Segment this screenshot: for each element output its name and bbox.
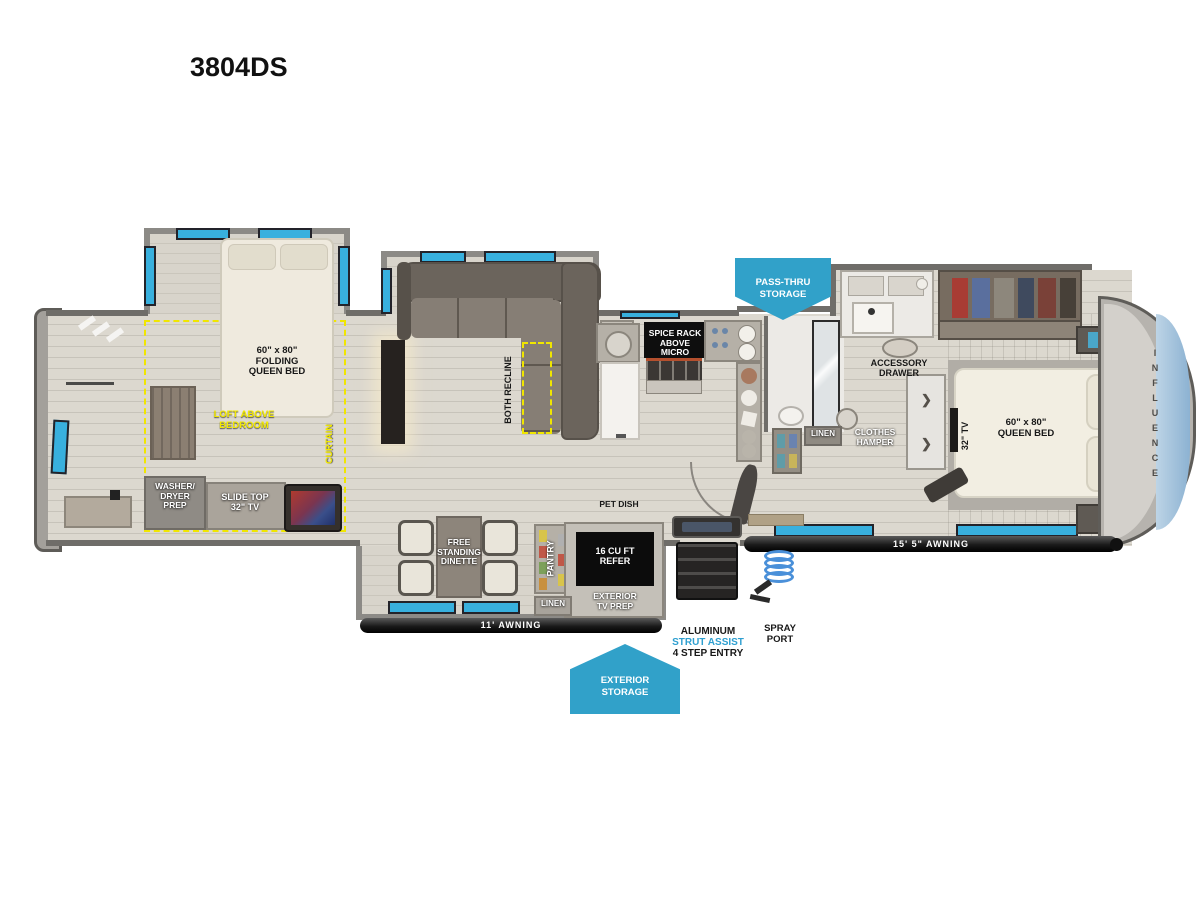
ent-center-label xyxy=(396,347,420,437)
kitchen-linen-label: LINEN xyxy=(534,600,572,609)
dinette-chair xyxy=(482,520,518,556)
entry-line3: 4 STEP ENTRY xyxy=(656,648,760,659)
bedroom-tv-label: 32" TV xyxy=(960,414,972,458)
stove xyxy=(646,358,702,380)
entry-steps xyxy=(676,542,738,600)
sofa-armrest xyxy=(397,262,411,340)
spice-rack-label: SPICE RACK ABOVE MICRO xyxy=(645,329,705,358)
window xyxy=(338,246,350,306)
queen-bed-label: 60" x 80" QUEEN BED xyxy=(984,418,1068,439)
kitchen-island xyxy=(600,362,640,440)
kitchen-counter-strip xyxy=(736,362,762,462)
wall-top-2 xyxy=(346,310,386,316)
entry-threshold xyxy=(748,514,804,526)
wall-top-1 xyxy=(46,310,148,316)
awning-small: 11' AWNING xyxy=(360,618,662,633)
floorplan-canvas: 3804DS 60" x 80" FOLDING xyxy=(0,0,1200,900)
exterior-tv-label: EXTERIOR TV PREP xyxy=(578,592,652,611)
entry-line2: STRUT ASSIST xyxy=(656,637,760,648)
entry-doormat xyxy=(672,516,742,538)
spray-faucet-base-icon xyxy=(750,594,771,603)
both-recline-label: BOTH RECLINE xyxy=(503,345,515,435)
wall-bottom-1 xyxy=(46,540,360,546)
window xyxy=(51,420,70,475)
window xyxy=(144,246,156,306)
bath-linen-label: LINEN xyxy=(804,430,842,439)
window xyxy=(462,601,520,614)
chevron-right-icon: ❯ xyxy=(921,392,932,408)
spray-port-label: SPRAY PORT xyxy=(748,624,812,645)
exterior-storage-label: EXTERIOR STORAGE xyxy=(601,675,650,697)
slide-top-tv-label: SLIDE TOP 32" TV xyxy=(208,492,282,512)
awning-small-label: 11' AWNING xyxy=(481,620,542,630)
accessory-drawer-label: ACCESSORY DRAWER xyxy=(864,358,934,378)
window xyxy=(620,311,680,319)
bedroom-tv xyxy=(950,408,958,452)
pantry-label: PANTRY xyxy=(546,529,559,589)
awning-main-label: 15' 5" AWNING xyxy=(893,539,969,549)
kitchen-sink-unit xyxy=(596,323,640,363)
sofa-back-right xyxy=(561,262,599,440)
refer-label: 16 CU FT REFER xyxy=(578,546,652,566)
chevron-right-icon: ❯ xyxy=(921,436,932,452)
washer-dryer-label: WASHER/ DRYER PREP xyxy=(146,482,204,511)
loft-tv-cabinet xyxy=(284,484,342,532)
shower xyxy=(812,320,840,428)
clothes-hamper-label: CLOTHES HAMPER xyxy=(846,428,904,447)
awning-main: 15' 5" AWNING xyxy=(744,536,1118,552)
recline-outline xyxy=(522,342,552,434)
range-front xyxy=(646,380,702,394)
floorplan-title: 3804DS xyxy=(190,52,350,82)
windshield-band xyxy=(1156,314,1190,530)
vanity-stool xyxy=(882,338,918,358)
brand-name: INFLUENCE xyxy=(1138,348,1160,508)
vanity xyxy=(840,270,934,338)
entry-line1: ALUMINUM xyxy=(656,626,760,637)
dinette-chair xyxy=(398,560,434,596)
loft-above-label: LOFT ABOVE BEDROOM xyxy=(200,410,288,431)
entry-labels: ALUMINUM STRUT ASSIST 4 STEP ENTRY xyxy=(656,626,760,670)
window xyxy=(176,228,230,240)
kitchen-counter-right xyxy=(704,320,762,362)
folding-queen-bed-label: 60" x 80" FOLDING QUEEN BED xyxy=(226,346,328,378)
spray-coil-icon xyxy=(764,550,798,594)
foot-wardrobe: ❯ ❯ xyxy=(906,374,946,470)
pet-dish-label: PET DISH xyxy=(594,500,644,510)
dinette-label: FREE STANDING DINETTE xyxy=(432,538,486,567)
front-closet xyxy=(938,270,1082,340)
curtain-label: CURTAIN xyxy=(324,414,336,474)
window xyxy=(388,601,456,614)
dinette-chair xyxy=(398,520,434,556)
rear-desk xyxy=(64,496,132,528)
loft-wardrobe xyxy=(150,386,196,460)
awning-end-cap xyxy=(1110,538,1123,551)
folding-queen-bed xyxy=(220,238,334,418)
rear-shelf-line xyxy=(66,382,114,385)
toilet xyxy=(778,406,804,426)
rear-shelf-marks xyxy=(78,318,138,348)
dish-cabinet xyxy=(772,428,802,474)
pass-thru-label: PASS-THRU STORAGE xyxy=(756,277,811,299)
window xyxy=(381,268,392,314)
dinette-chair xyxy=(482,560,518,596)
